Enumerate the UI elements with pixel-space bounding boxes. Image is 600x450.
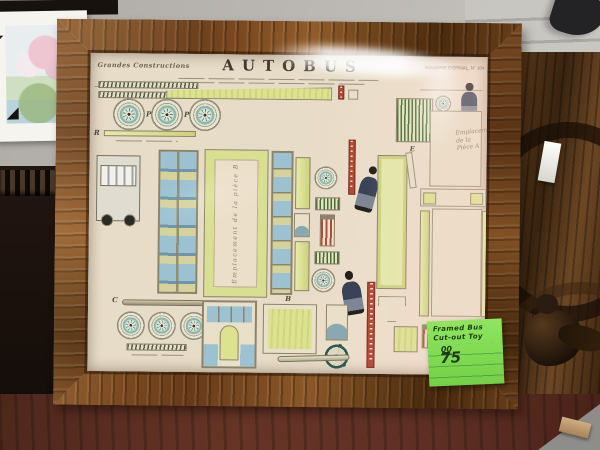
note-item-line2: Cut-out Toy [433, 332, 483, 343]
piece-letter: P [184, 111, 189, 118]
hatched-piece [314, 251, 339, 264]
instructions-line [188, 81, 368, 84]
tread-strip-piece [98, 81, 198, 89]
wheel-piece [149, 313, 175, 339]
strip-caption [116, 140, 178, 142]
wheel-piece [118, 312, 144, 338]
arched-door-piece [326, 304, 348, 340]
radiator-piece [320, 214, 335, 246]
bronze-figurine [516, 290, 600, 382]
piece-letter: C [112, 296, 118, 303]
small-piece [348, 90, 358, 100]
note-price-cents: 00 [441, 346, 453, 355]
price-sticky-note: Framed Bus Cut-out Toy 7500 [427, 318, 505, 386]
wooden-chair [510, 52, 600, 450]
photo-corner-mount [7, 107, 19, 119]
arched-window-piece [294, 213, 310, 237]
antique-shop-photo: Grandes Constructions AUTOBUS Imagerie d… [0, 0, 600, 450]
tread-strip-piece [127, 343, 187, 351]
wheel-piece [190, 100, 220, 130]
yellow-segment-piece [294, 241, 310, 291]
piece-letter: R [94, 129, 100, 136]
wheel-piece-small [312, 269, 334, 291]
wheel-piece-small [315, 167, 336, 188]
small-red-piece [338, 86, 344, 100]
yellow-panel-piece [264, 305, 316, 354]
photo-corner-mount [0, 36, 3, 46]
red-label-strip [348, 140, 356, 195]
hatched-piece [315, 197, 340, 210]
strip-caption [132, 354, 184, 356]
wheel-piece [152, 100, 182, 130]
piece-letter: B [285, 295, 291, 302]
wheel-piece [114, 99, 144, 129]
piece-letter: P [146, 111, 151, 118]
axle-strip-piece [104, 130, 196, 137]
bus-end-panel [201, 300, 257, 369]
axle-rod-piece [122, 299, 204, 306]
